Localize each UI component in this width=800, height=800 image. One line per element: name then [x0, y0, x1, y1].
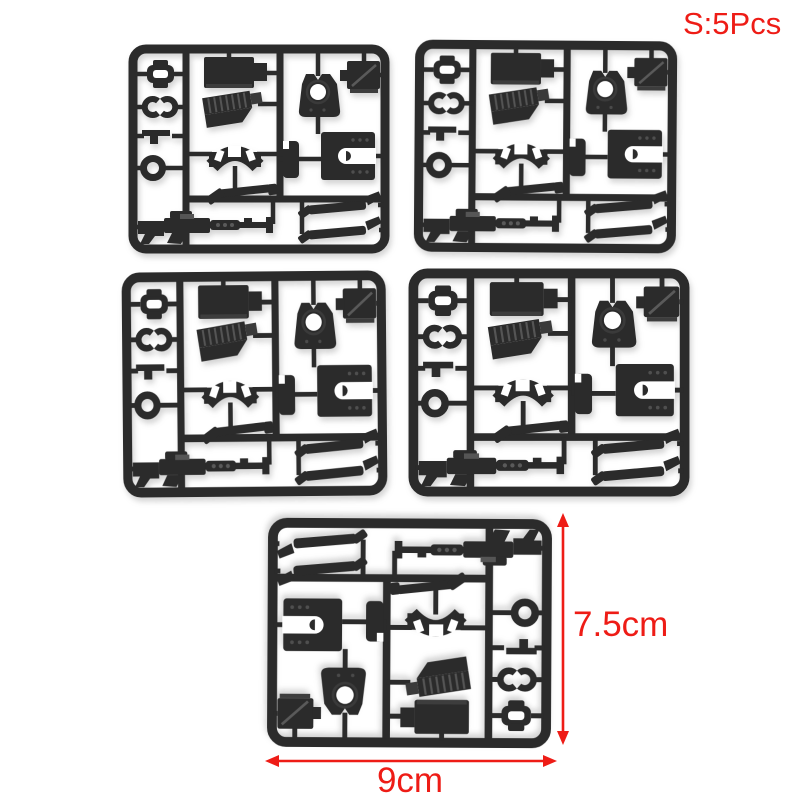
- sprue-svg: [413, 39, 677, 254]
- sprue-middle-right: [408, 268, 690, 497]
- sprue-top-left: [128, 44, 390, 254]
- sprue-svg: [121, 270, 388, 498]
- product-photo: S:5Pcs 7.5cm 9cm: [0, 0, 800, 800]
- quantity-label: S:5Pcs: [683, 8, 781, 39]
- width-label: 9cm: [300, 763, 520, 798]
- sprue-bottom-center: [266, 517, 552, 748]
- sprue-svg: [408, 268, 690, 497]
- height-dimension-arrow-icon: [553, 512, 575, 746]
- sprue-svg: [128, 44, 390, 254]
- sprue-svg: [266, 517, 552, 748]
- sprue-top-right: [413, 39, 677, 254]
- height-label: 7.5cm: [573, 607, 668, 642]
- sprue-middle-left: [121, 270, 388, 498]
